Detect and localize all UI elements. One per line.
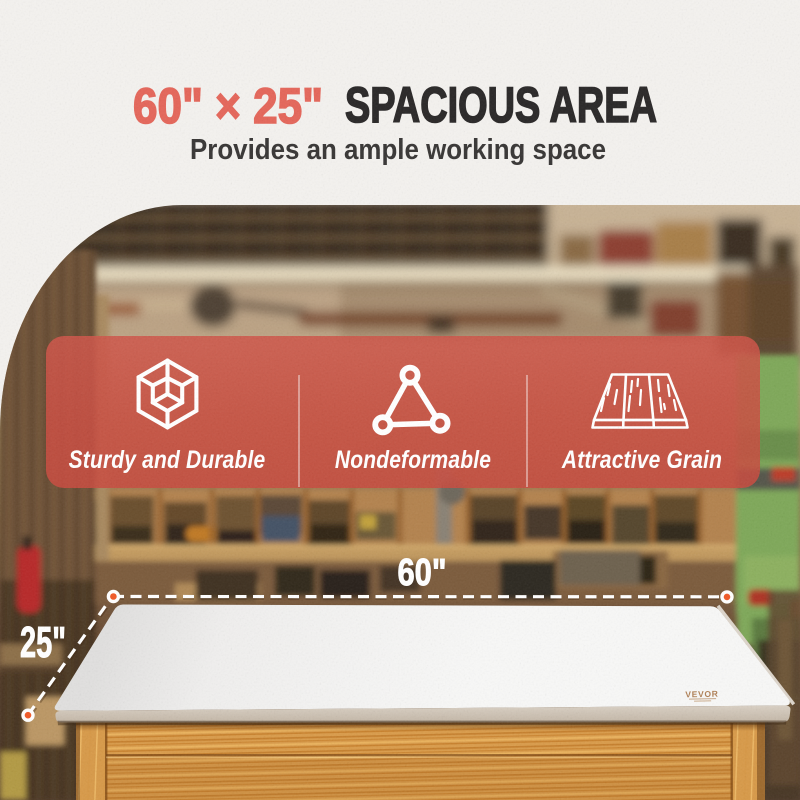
svg-text:VEVOR: VEVOR bbox=[685, 689, 718, 700]
svg-text:SPACIOUS AREA: SPACIOUS AREA bbox=[345, 77, 657, 133]
svg-text:60": 60" bbox=[398, 552, 447, 594]
svg-text:25": 25" bbox=[20, 618, 66, 667]
svg-text:60" × 25": 60" × 25" bbox=[133, 78, 323, 134]
svg-text:Provides an ample working spac: Provides an ample working space bbox=[190, 134, 606, 166]
